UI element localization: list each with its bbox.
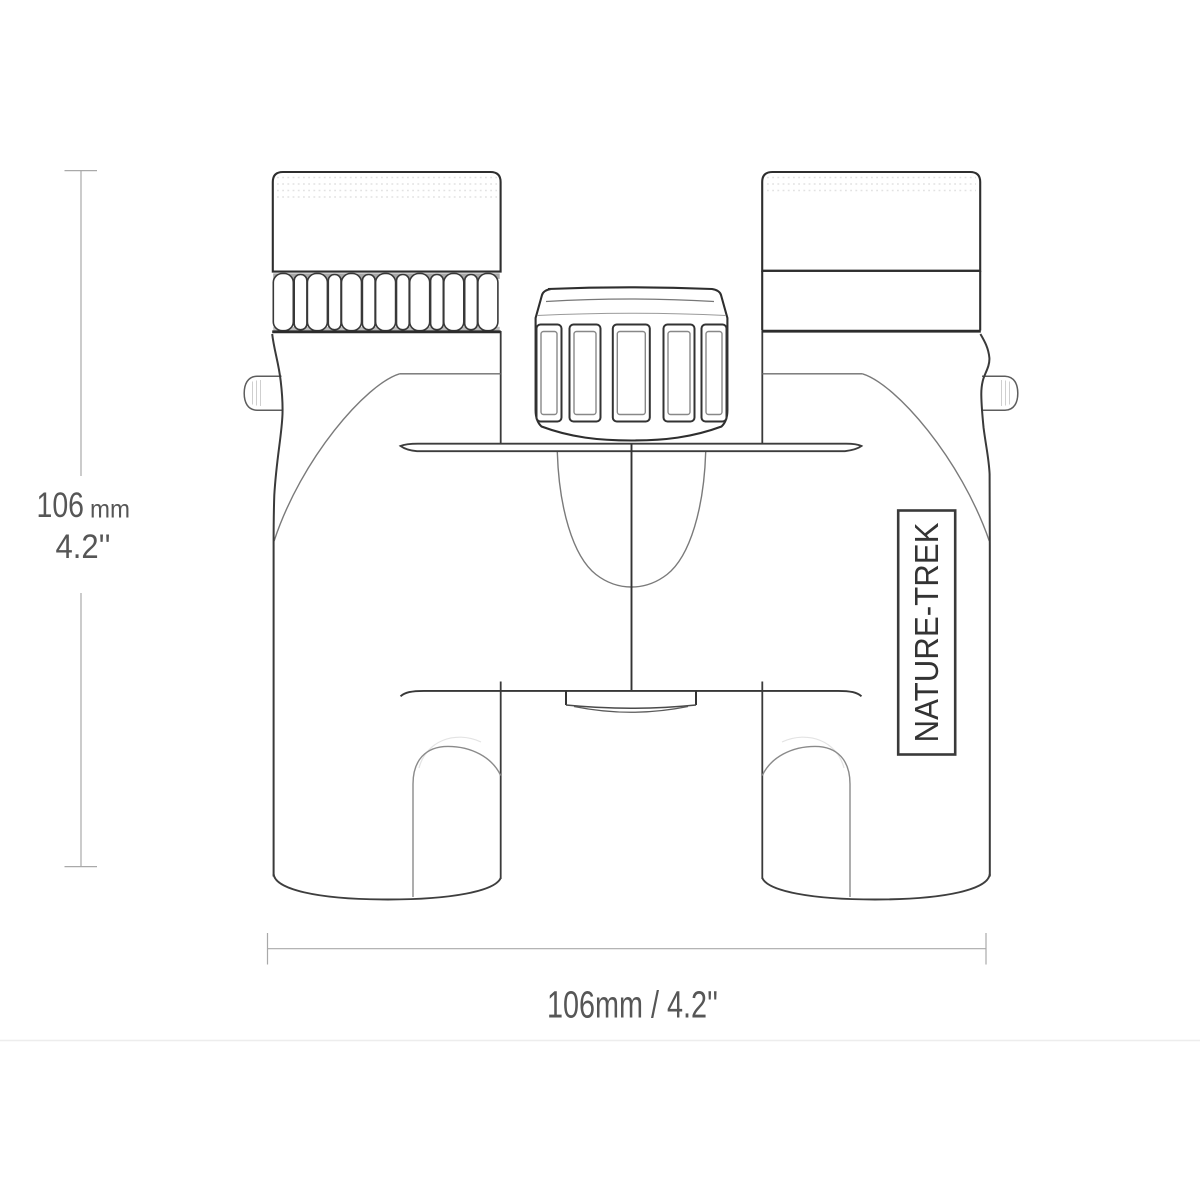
svg-text:106: 106 (37, 486, 85, 525)
svg-text:mm: mm (90, 496, 130, 524)
svg-text:106mm / 4.2'': 106mm / 4.2'' (547, 985, 718, 1027)
svg-text:NATURE-TREK: NATURE-TREK (908, 523, 945, 743)
svg-text:4.2'': 4.2'' (56, 528, 111, 566)
